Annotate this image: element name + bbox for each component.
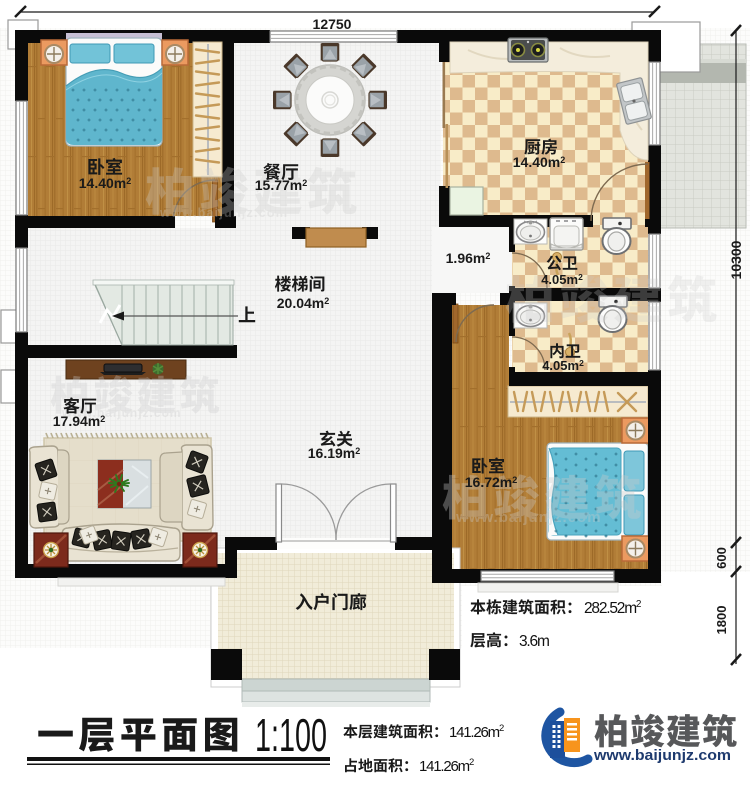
svg-text:17.94m2: 17.94m2 xyxy=(53,413,106,429)
svg-text:16.19m2: 16.19m2 xyxy=(308,445,361,461)
svg-text:15.77m2: 15.77m2 xyxy=(255,177,308,193)
svg-text:www.baijunjz.com: www.baijunjz.com xyxy=(159,205,288,220)
svg-text:www.baijunjz.com: www.baijunjz.com xyxy=(455,509,601,526)
svg-text:141.26m2: 141.26m2 xyxy=(419,757,474,775)
svg-text:4.05m2: 4.05m2 xyxy=(542,358,584,373)
svg-text:4.05m2: 4.05m2 xyxy=(541,272,583,287)
svg-text:141.26m2: 141.26m2 xyxy=(449,723,504,741)
svg-text:12750: 12750 xyxy=(313,16,352,32)
svg-text:3.6m: 3.6m xyxy=(519,633,549,650)
svg-text:1.96m2: 1.96m2 xyxy=(446,250,491,266)
svg-text:1800: 1800 xyxy=(714,606,729,635)
svg-text:1:100: 1:100 xyxy=(255,709,327,761)
svg-text:16.72m2: 16.72m2 xyxy=(465,474,518,490)
svg-text:10300: 10300 xyxy=(728,240,744,279)
svg-text:282.52m2: 282.52m2 xyxy=(584,599,642,617)
svg-text:600: 600 xyxy=(714,547,729,569)
svg-text:14.40m2: 14.40m2 xyxy=(513,154,566,170)
svg-text:14.40m2: 14.40m2 xyxy=(79,175,132,191)
svg-text:20.04m2: 20.04m2 xyxy=(277,295,330,311)
svg-text:www.baijunjz.com: www.baijunjz.com xyxy=(593,748,731,764)
